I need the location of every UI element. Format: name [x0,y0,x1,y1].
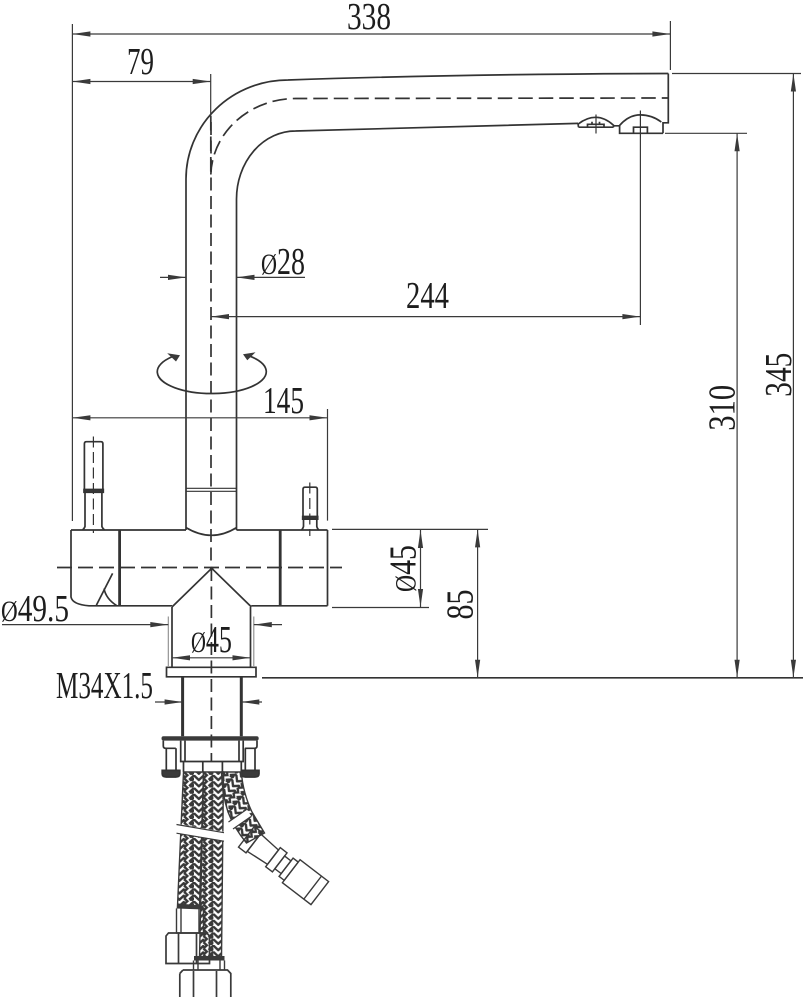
svg-text:Ø49.5: Ø49.5 [1,588,69,630]
svg-text:244: 244 [406,275,449,317]
svg-text:345: 345 [758,353,800,397]
svg-text:Ø28: Ø28 [261,241,305,283]
svg-text:M34X1.5: M34X1.5 [56,665,153,707]
svg-text:338: 338 [347,0,391,38]
svg-text:310: 310 [702,385,744,431]
svg-text:145: 145 [263,380,304,422]
svg-text:85: 85 [440,590,482,620]
svg-text:Ø45: Ø45 [191,619,232,661]
svg-text:79: 79 [127,41,154,83]
svg-text:Ø45: Ø45 [383,545,425,592]
